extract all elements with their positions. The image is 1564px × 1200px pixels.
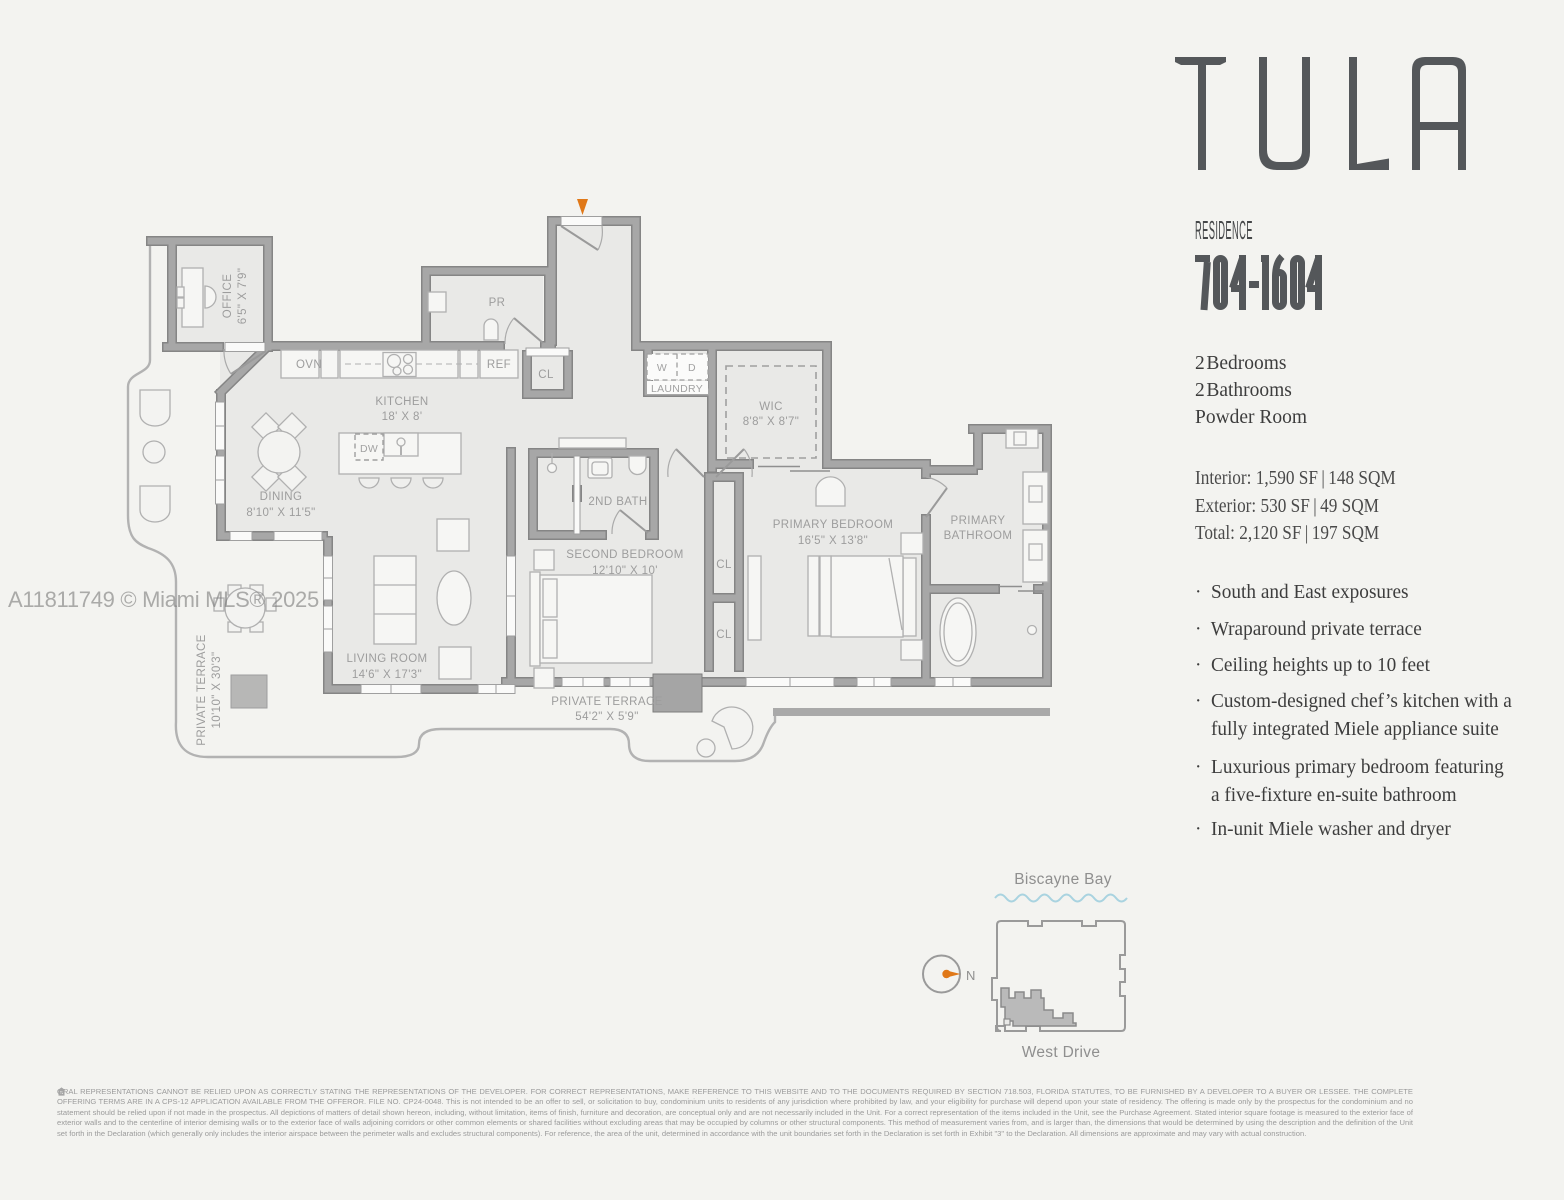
svg-text:CL: CL — [716, 629, 732, 641]
svg-text:2ND BATH: 2ND BATH — [588, 496, 647, 508]
svg-text:8'10" X 11'5": 8'10" X 11'5" — [246, 507, 315, 519]
svg-text:54'2" X 5'9": 54'2" X 5'9" — [575, 711, 638, 723]
svg-text:OVN: OVN — [296, 359, 322, 371]
svg-text:CL: CL — [716, 559, 732, 571]
svg-text:N: N — [966, 968, 975, 983]
svg-text:DW: DW — [360, 443, 378, 455]
svg-text:CL: CL — [538, 369, 554, 381]
svg-text:PRIMARY: PRIMARY — [951, 515, 1006, 527]
svg-text:16'5" X 13'8": 16'5" X 13'8" — [798, 535, 868, 547]
svg-text:LAUNDRY: LAUNDRY — [651, 383, 703, 395]
svg-text:KITCHEN: KITCHEN — [375, 396, 428, 408]
svg-text:PRIVATE TERRACE: PRIVATE TERRACE — [196, 634, 208, 745]
svg-text:REF: REF — [487, 359, 511, 371]
svg-text:OFFICE: OFFICE — [222, 274, 234, 319]
svg-text:PRIMARY BEDROOM: PRIMARY BEDROOM — [773, 519, 894, 531]
svg-text:8'8" X 8'7": 8'8" X 8'7" — [743, 416, 800, 428]
svg-text:12'10" X 10': 12'10" X 10' — [592, 565, 658, 577]
svg-text:SECOND BEDROOM: SECOND BEDROOM — [566, 549, 683, 561]
svg-text:West Drive: West Drive — [1022, 1044, 1101, 1061]
svg-text:BATHROOM: BATHROOM — [944, 530, 1013, 542]
svg-text:WIC: WIC — [759, 401, 783, 413]
svg-text:PR: PR — [489, 297, 506, 309]
svg-text:14'6" X 17'3": 14'6" X 17'3" — [352, 669, 422, 681]
svg-text:10'10" X 30'3": 10'10" X 30'3" — [211, 652, 223, 729]
svg-text:D: D — [688, 362, 696, 374]
svg-text:W: W — [657, 362, 667, 374]
svg-text:6'5" X 7'9": 6'5" X 7'9" — [237, 268, 249, 325]
svg-text:LIVING ROOM: LIVING ROOM — [346, 653, 427, 665]
svg-text:Biscayne Bay: Biscayne Bay — [1014, 871, 1112, 888]
svg-text:DINING: DINING — [260, 491, 303, 503]
svg-text:PRIVATE TERRACE: PRIVATE TERRACE — [551, 696, 662, 708]
svg-text:18' X 8': 18' X 8' — [382, 411, 423, 423]
